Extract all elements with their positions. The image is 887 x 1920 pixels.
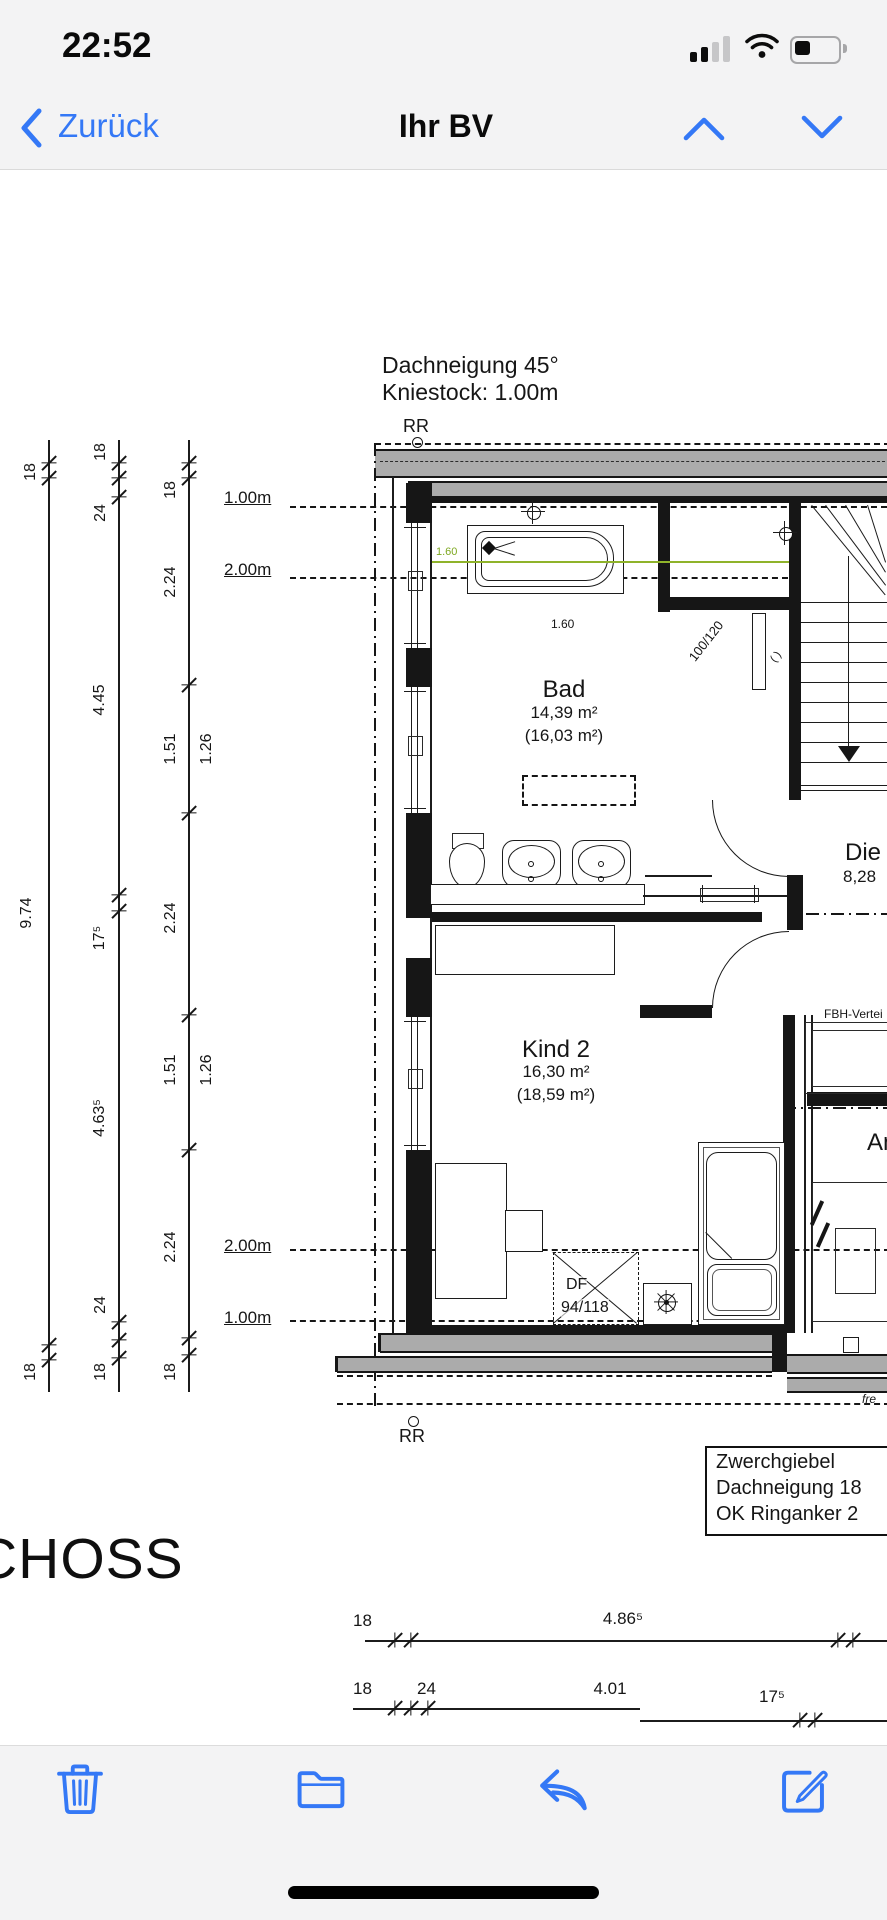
niche-wall-left: [658, 502, 670, 612]
wall-ankleide-top: [807, 1092, 887, 1106]
wall-bad-kind2: [432, 912, 762, 922]
iphone-screen: 22:52 Zurück Ihr BV: [0, 0, 887, 1920]
fbh-cabinet-inner: [812, 1030, 887, 1087]
df-label-line2: 94/118: [561, 1299, 609, 1317]
roof-band-top: [375, 449, 887, 478]
level-label-top-100: 1.00m: [224, 488, 271, 508]
level-line-bottom-200: [290, 1249, 887, 1251]
battery-icon: [790, 36, 848, 62]
trash-button[interactable]: [52, 1760, 108, 1818]
level-label-top-200: 2.00m: [224, 560, 271, 580]
room-area-bad: 14,39 m²: [530, 703, 597, 723]
room-name-diele: Die: [845, 839, 881, 867]
next-item-button[interactable]: [798, 112, 846, 144]
folder-icon: [292, 1762, 350, 1818]
green-dim-label: 1.60: [436, 546, 457, 558]
room-name-ankleide: Ank: [867, 1129, 887, 1157]
ceiling-symbol-1: [521, 500, 545, 524]
back-label: Zurück: [58, 107, 159, 145]
room-area-diele: 8,28: [843, 867, 876, 887]
note-box-line2: Dachneigung 18: [716, 1477, 862, 1500]
roof-edge-dashed-top: [375, 443, 887, 445]
door-leaf-bad: [645, 875, 712, 877]
wardrobe-kind2: [435, 925, 615, 975]
df-label-line1: DF: [566, 1276, 587, 1294]
chevron-down-icon: [798, 112, 846, 144]
folder-button[interactable]: [292, 1762, 350, 1818]
level-label-bottom-200: 2.00m: [224, 1236, 271, 1256]
trash-icon: [52, 1760, 108, 1818]
roof-note-line2: Kniestock: 1.00m: [382, 379, 558, 406]
prev-item-button[interactable]: [680, 112, 728, 144]
desk-ankleide-inner: [835, 1228, 876, 1294]
dormer-wall-top: [408, 481, 887, 498]
page-title: Ihr BV: [399, 108, 493, 145]
niche-element: [752, 613, 766, 690]
green-dim-line: [432, 561, 789, 563]
room-area-kind2: 16,30 m²: [522, 1062, 589, 1082]
rr-label-bottom: RR: [399, 1426, 425, 1447]
rr-label-top: RR: [403, 416, 429, 437]
wall-door-block: [787, 875, 803, 930]
section-dash-diele: [806, 913, 887, 915]
section-dash-ankleide: [783, 1107, 887, 1109]
room-area2-bad: (16,03 m²): [525, 726, 603, 746]
kind2-door-leaf-wall: [640, 1005, 712, 1018]
note-box-line3: OK Ringanker 2: [716, 1503, 858, 1526]
reply-button[interactable]: [533, 1762, 593, 1816]
home-indicator[interactable]: [288, 1886, 599, 1899]
rr-drain-symbol-bottom: [408, 1416, 419, 1427]
signal-icon: [690, 36, 736, 62]
desk-kind2: [435, 1163, 507, 1299]
room-area2-kind2: (18,59 m²): [517, 1085, 595, 1105]
fbh-label: FBH-Vertei: [824, 1007, 883, 1021]
compose-button[interactable]: [775, 1762, 831, 1818]
compose-icon: [775, 1762, 831, 1818]
note-box-line1: Zwerchgiebel: [716, 1451, 835, 1474]
vanity-counter: [430, 884, 645, 905]
room-name-kind2: Kind 2: [522, 1036, 590, 1064]
stair-walk-line: [848, 556, 849, 748]
niche-wall-bottom: [658, 597, 789, 610]
roof-band-top-inner-dash: [380, 461, 887, 462]
reply-icon: [533, 1762, 593, 1816]
small-note: fre: [862, 1392, 876, 1406]
chair-kind2: [505, 1210, 543, 1252]
roof-note-line1: Dachneigung 45°: [382, 352, 559, 379]
tub-width-label: 1.60: [551, 617, 574, 631]
ceiling-symbol-2: [773, 521, 797, 545]
floor-label: CHOSS: [0, 1526, 184, 1592]
room-name-bad: Bad: [543, 676, 586, 704]
status-time: 22:52: [62, 26, 152, 66]
chevron-up-icon: [680, 112, 728, 144]
stair-direction-arrow: [838, 746, 860, 762]
wall-stair: [789, 500, 801, 800]
back-chevron-icon: [18, 106, 44, 150]
section-line-vertical: [374, 443, 376, 1408]
dashed-roof-window-bad: [522, 775, 636, 806]
level-label-bottom-100: 1.00m: [224, 1308, 271, 1328]
wifi-icon: [744, 32, 780, 60]
back-button[interactable]: Zurück: [18, 104, 198, 154]
